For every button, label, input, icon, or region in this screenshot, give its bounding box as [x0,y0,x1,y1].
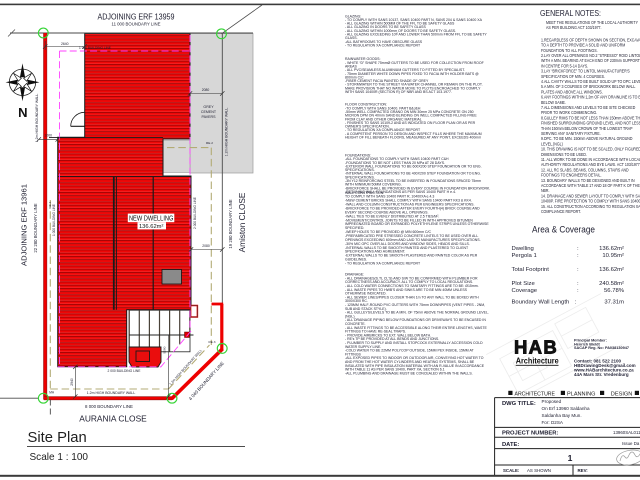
svg-text:HEIGHT OF FILL BENEATH FLOORS,: HEIGHT OF FILL BENEATH FLOORS, MEASURED … [345,135,481,139]
svg-text:2940: 2940 [70,378,74,386]
svg-text:136.62m²: 136.62m² [139,224,164,230]
svg-text:IMPREGNATED BOARD OR EXPANDED: IMPREGNATED BOARD OR EXPANDED POLYETHYLE… [345,222,489,226]
svg-text:DWG TITLE:: DWG TITLE: [502,401,536,407]
svg-text:Site Plan: Site Plan [28,430,87,446]
svg-text:Architecture: Architecture [516,356,559,366]
svg-text:DESIGN: DESIGN [611,391,633,397]
svg-text:136.62m²: 136.62m² [599,246,624,252]
svg-text:HAB: HAB [514,337,558,358]
svg-text:On Erf 13960 Saldanha: On Erf 13960 Saldanha [542,406,590,411]
svg-text:SCALE:: SCALE: [503,468,520,473]
svg-text:PROJECT NUMBER:: PROJECT NUMBER: [502,431,558,437]
svg-text:ACCORDANCE WITH TABLE 17 AND 1: ACCORDANCE WITH TABLE 17 AND 18 OF PART … [541,183,640,189]
svg-text:Total Footprint: Total Footprint [512,267,550,273]
svg-text:PLANNING: PLANNING [567,391,596,397]
svg-text:240.58m²: 240.58m² [599,281,624,287]
svg-text:Dwelling: Dwelling [512,246,534,252]
svg-text:2080: 2080 [202,244,210,248]
svg-text:- 75mm DIAMETER WHITE DOWN PIP: - 75mm DIAMETER WHITE DOWN PIPES FIXED T… [345,72,479,76]
svg-text:136.62m²: 136.62m² [599,267,624,273]
svg-text:- WHITE “D” SHAPE 75mmØ GUTTER: - WHITE “D” SHAPE 75mmØ GUTTERS TO BE US… [345,61,484,65]
svg-text:44A Mars Str. Vredenburg: 44A Mars Str. Vredenburg [574,372,629,377]
svg-text:CEMENT: CEMENT [201,110,217,114]
svg-text:1.2m HIGH BOUNDARY WALL: 1.2m HIGH BOUNDARY WALL [35,94,39,143]
svg-text:COMPLIANCE REPORT.: COMPLIANCE REPORT. [541,209,581,215]
svg-text:RE.1: RE.1 [48,201,52,208]
svg-text:5080: 5080 [163,346,167,353]
svg-text:1 000 BUILDING LINE: 1 000 BUILDING LINE [79,46,111,50]
svg-text:13960SAL011–00: 13960SAL011–00 [613,430,640,435]
svg-text:2 000 BUILDING LINE: 2 000 BUILDING LINE [108,369,142,373]
svg-text:37.31m: 37.31m [604,300,624,306]
svg-text:Scale 1 : 100: Scale 1 : 100 [30,452,89,463]
svg-text:ADJOINING ERF 13959: ADJOINING ERF 13959 [98,13,175,22]
svg-text:WITH SANS 10400R (SECTION R) O: WITH SANS 10400R (SECTION R) OF NBR AND … [345,90,452,94]
svg-text:11 000 BOUNDARY LINE: 11 000 BOUNDARY LINE [112,22,161,27]
svg-text:2080: 2080 [202,88,210,92]
svg-text:1 000 BUILDING LINE: 1 000 BUILDING LINE [52,204,56,236]
svg-text:AS SHOWN: AS SHOWN [527,468,551,473]
svg-text:NEW DWELLING: NEW DWELLING [129,216,174,223]
svg-text:- TO REGULATION XA COMPLIANCE: - TO REGULATION XA COMPLIANCE REPORT [345,261,421,265]
svg-text:2 000 BUILDING LINE: 2 000 BUILDING LINE [193,197,197,229]
svg-text:- TO REGULATION XA COMPLIANCE: - TO REGULATION XA COMPLIANCE REPORT [345,43,421,47]
svg-text:1: 1 [568,453,573,463]
svg-text:AURANIA CLOSE: AURANIA CLOSE [79,414,147,424]
svg-text:SACAP Reg. No: PA038130947: SACAP Reg. No: PA038130947 [574,346,629,350]
svg-text:GENERAL NOTES:: GENERAL NOTES: [540,8,601,18]
svg-text:Proposed: Proposed [542,399,562,404]
svg-text:Issue Da: Issue Da [622,441,640,446]
svg-text:AS PER BUILDING ACT 103/1977.: AS PER BUILDING ACT 103/1977. [546,25,602,31]
svg-text:Saldanha Bay Mun.: Saldanha Bay Mun. [542,413,582,418]
svg-text:-ALL PLUMBING AND DRAINAGE MUS: -ALL PLUMBING AND DRAINAGE MUST BE CONCE… [345,371,473,375]
svg-text:Pergola 1: Pergola 1 [512,253,537,259]
svg-text:1000: 1000 [45,134,53,138]
svg-text:10.95m²: 10.95m² [602,253,624,259]
svg-text:RE.3: RE.3 [209,340,216,344]
svg-text:- ALL GULLEYS/LEVELS TO BE A M: - ALL GULLEYS/LEVELS TO BE A MIN. OF 75m… [345,310,489,314]
svg-text:RE.2: RE.2 [206,141,213,145]
svg-text:Area & Coverage: Area & Coverage [532,225,595,235]
svg-text:1.2m HIGH BOUNDARY WALL: 1.2m HIGH BOUNDARY WALL [87,391,136,395]
svg-text:1.2m HIGH BOUNDARY WALL: 1.2m HIGH BOUNDARY WALL [225,108,229,157]
svg-text:19 280 BOUNDARY LINE: 19 280 BOUNDARY LINE [228,199,233,248]
svg-text:GREY: GREY [203,105,214,109]
svg-text:22 280 BOUNDARY LINE: 22 280 BOUNDARY LINE [33,203,38,252]
svg-text:N: N [18,105,27,120]
svg-text:-COLD WATER TO BE 22MM POLYCOP: -COLD WATER TO BE 22MM POLYCOP OUTSIDE, … [345,348,474,352]
svg-text:REV:: REV: [578,468,589,473]
svg-text:PAVERS: PAVERS [201,115,216,119]
svg-text:Amiston CLOSE: Amiston CLOSE [238,192,247,252]
svg-text:DATE:: DATE: [502,442,519,448]
svg-text:56.78%: 56.78% [604,288,625,294]
svg-text:MH: MH [49,391,55,395]
svg-text:Coverage: Coverage [512,288,538,294]
svg-text:Boundary Wall Length: Boundary Wall Length [512,300,570,306]
svg-text:8 000 BOUNDARY LINE: 8 000 BOUNDARY LINE [85,404,133,409]
svg-text:ADJOINING ERF 13961: ADJOINING ERF 13961 [20,184,29,266]
svg-text:2640: 2640 [61,42,69,46]
svg-text:Plot Size: Plot Size [512,281,536,287]
svg-text:- ALL GLAZING EXCEEDING 10f² A: - ALL GLAZING EXCEEDING 10f² AND LOWER T… [345,32,487,36]
svg-text:For: D2SA: For: D2SA [542,420,564,425]
svg-text:- ALL DRAINAGE PIPING BELOW FO: - ALL DRAINAGE PIPING BELOW FOUNDATIONS … [345,318,486,322]
svg-text:ARCHITECTURE: ARCHITECTURE [515,391,556,397]
